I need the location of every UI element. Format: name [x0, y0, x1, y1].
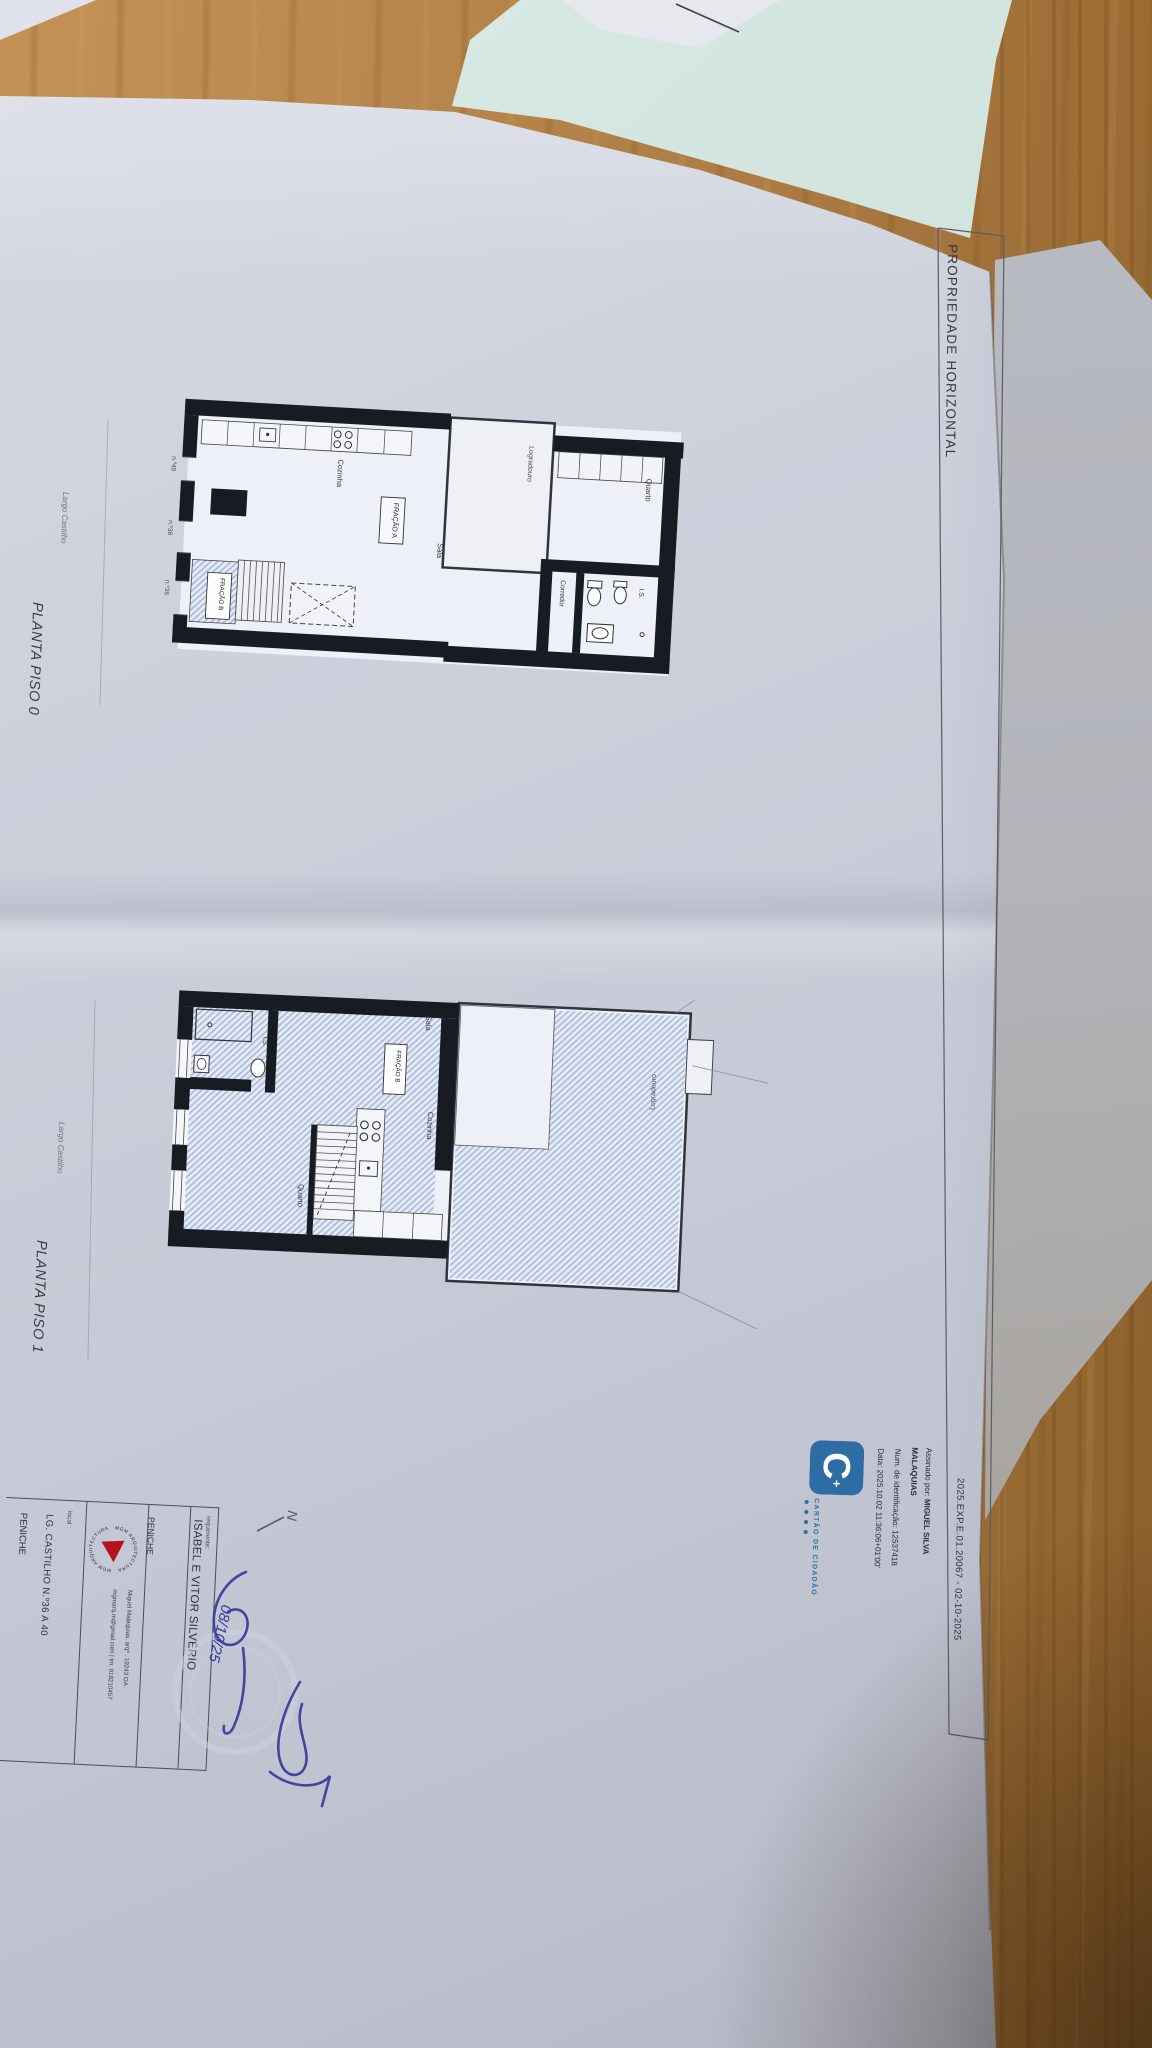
requerente-label: requerente: — [203, 1516, 212, 1550]
signature-line-2: MALAQUIAS — [909, 1447, 920, 1496]
door-number-38: n.º38 — [166, 520, 174, 536]
plan1-stairs — [313, 1125, 357, 1221]
svg-text:C: C — [814, 1451, 857, 1480]
cc-dot — [804, 1510, 808, 1514]
door-number-36: n.º36 — [163, 580, 171, 596]
signature-line-4: Data: 2025.10.02 11:36:06+01'00' — [873, 1448, 886, 1568]
desk-photo: PROPRIEDADE HORIZONTAL 2025.EXP.E.01.200… — [0, 0, 1152, 2048]
title-block: requerente: ISABEL E VITOR SILVÉRIO PENI… — [0, 1497, 219, 1771]
architect-line: Miguel Malaquias, arqº . 19243 OA — [121, 1590, 133, 1686]
signed-by-label: Assinado por: — [923, 1448, 934, 1499]
floor-plan-piso1: FRAÇÃO B Sala Cozinha I.S. Quarto Lograd… — [156, 976, 771, 1353]
drain-icon — [640, 633, 644, 637]
plan0-label-cozinha: Cozinha — [335, 459, 346, 488]
requerente-city: PENICHE — [145, 1517, 157, 1555]
plan1-label-quarto: Quarto — [296, 1184, 306, 1207]
svg-text:+: + — [829, 1480, 844, 1488]
signature-line-1: Assinado por: MIGUEL SILVA — [921, 1448, 933, 1555]
cc-dot — [805, 1500, 809, 1504]
toilet-icon — [251, 1059, 266, 1078]
cc-dot — [804, 1530, 808, 1534]
plan0-label-sala: Sala — [435, 543, 445, 559]
toilet-icon — [588, 581, 602, 589]
mgm-office-logo-icon: MGM ARQUITECTURA MGM ARQUITECTURA — [85, 1518, 144, 1581]
document-frame-title: PROPRIEDADE HORIZONTAL — [943, 244, 960, 459]
plan0-label-is: I.S. — [637, 588, 645, 599]
contact-line: mgmarq.m@gmail.com | tm. 918210457 — [106, 1589, 118, 1700]
digital-signature-block: C + CARTÃO DE CIDADÃO Assinado por: MIGU… — [795, 1434, 944, 1738]
signed-by-name: MIGUEL SILVA — [921, 1499, 932, 1555]
plan1-label-cozinha: Cozinha — [425, 1112, 435, 1141]
requerente-name: ISABEL E VITOR SILVÉRIO — [184, 1519, 203, 1671]
washbasin-icon — [194, 1055, 210, 1073]
plan0-label-quarto: Quarto — [644, 479, 654, 502]
door-number-40: n.º40 — [169, 456, 177, 472]
signature-line-3: Num. de identificação: 12537418 — [890, 1449, 903, 1566]
cartao-cidadao-logo-icon: C + — [809, 1440, 865, 1496]
cc-brand-text: CARTÃO DE CIDADÃO — [810, 1498, 820, 1596]
plan1-label-is: I.S. — [261, 1036, 268, 1047]
floor-plan-piso0: FRAÇÃO A FRAÇÃO B Cozinha Sala Logradour… — [154, 390, 757, 752]
shower-icon — [195, 1009, 252, 1042]
plan0-stairs — [235, 560, 284, 622]
plan1-yard-void — [455, 1005, 555, 1149]
plan0-stair-void — [289, 583, 355, 627]
title-block-separator — [74, 1502, 88, 1764]
plan1-label-sala: Sala — [424, 1015, 434, 1031]
local-label: local : — [65, 1511, 73, 1528]
office-logo-red-mark — [101, 1540, 125, 1563]
plan0-logradouro-yard — [443, 418, 555, 574]
local-line: LG. CASTILHO N.º36 A 40 — [38, 1514, 55, 1636]
local-city: PENICHE — [16, 1513, 29, 1556]
cc-dot — [804, 1520, 808, 1524]
